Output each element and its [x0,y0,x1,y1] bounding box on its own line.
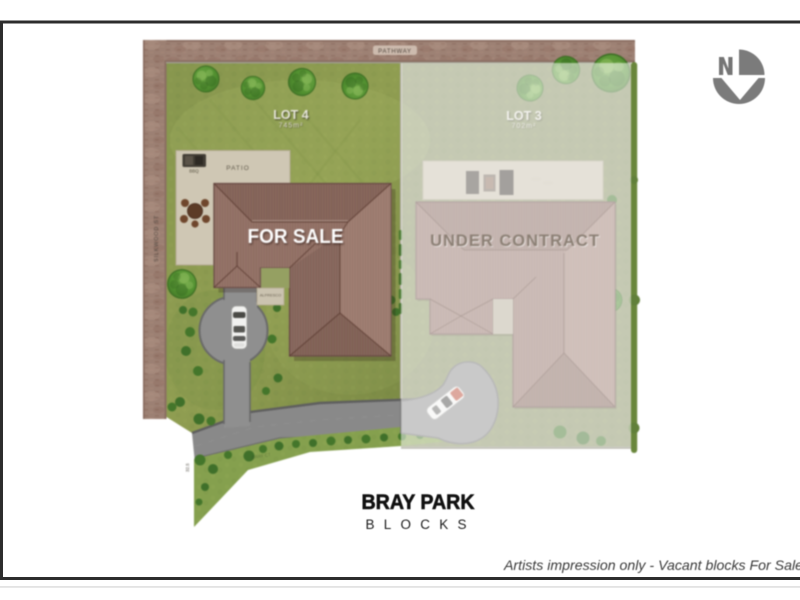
svg-text:UNDER CONTRACT: UNDER CONTRACT [430,232,600,250]
svg-text:BRAY PARK: BRAY PARK [362,490,475,514]
svg-text:PATIO: PATIO [226,165,250,172]
svg-text:PATHWAY: PATHWAY [378,49,412,55]
svg-text:BLOCKS: BLOCKS [366,517,467,532]
svg-text:SILKWOOD ST: SILKWOOD ST [154,215,160,262]
svg-text:745m²: 745m² [279,123,304,130]
svg-text:FOR SALE: FOR SALE [248,225,344,248]
svg-text:Artists impression only - Vaca: Artists impression only - Vacant blocks … [503,557,800,573]
svg-text:32.5: 32.5 [185,463,190,472]
svg-text:ALFRESCO: ALFRESCO [260,293,282,298]
svg-text:BBQ: BBQ [189,169,199,174]
svg-text:LOT 4: LOT 4 [273,108,308,122]
